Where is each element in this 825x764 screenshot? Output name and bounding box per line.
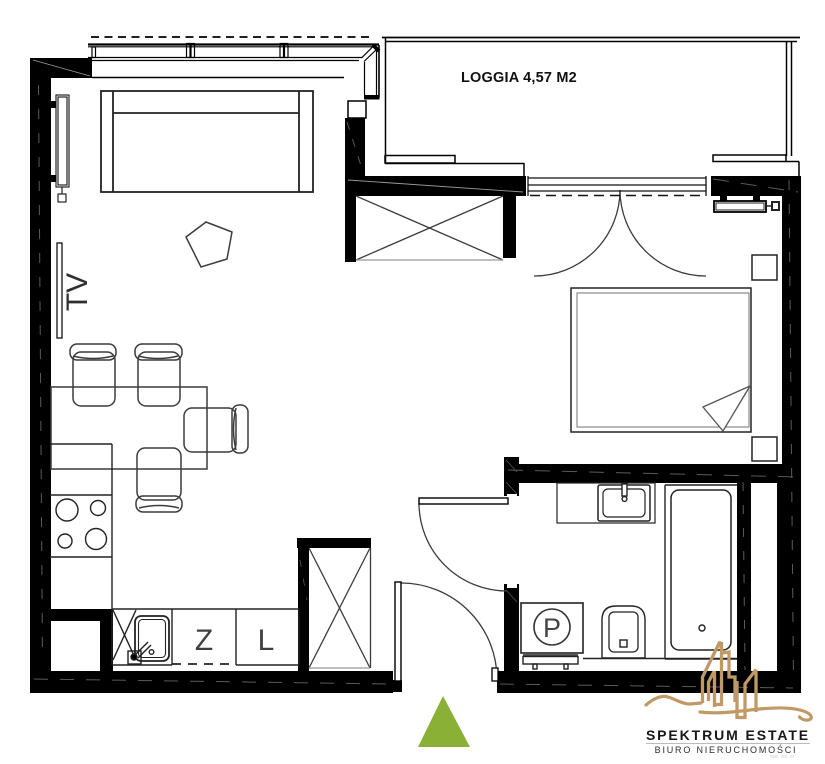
svg-text:BIURO NIERUCHOMOŚCI: BIURO NIERUCHOMOŚCI bbox=[655, 744, 798, 755]
svg-text:LOGGIA 4,57 M2: LOGGIA 4,57 M2 bbox=[461, 70, 577, 86]
svg-text:L: L bbox=[258, 624, 275, 657]
svg-text:SPEKTRUM ESTATE: SPEKTRUM ESTATE bbox=[646, 727, 810, 743]
svg-text:Z: Z bbox=[195, 624, 213, 657]
svg-text:P: P bbox=[543, 613, 561, 643]
svg-text:TV: TV bbox=[61, 273, 94, 311]
